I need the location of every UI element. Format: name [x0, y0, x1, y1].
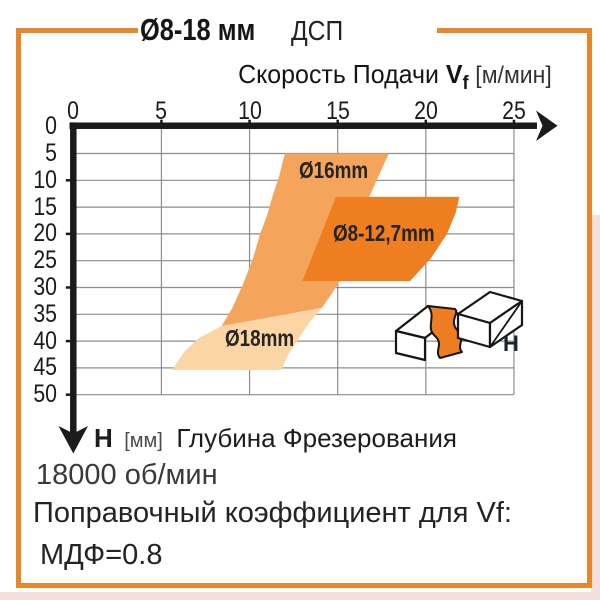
y-tick-label: 0 — [17, 112, 57, 141]
rpm-note: 18000 об/мин — [36, 459, 218, 492]
x-tick-label: 10 — [228, 97, 271, 126]
depth-h-label: H — [503, 331, 519, 357]
mdf-coefficient-value: МДФ=0.8 — [40, 539, 162, 572]
y-tick-label: 25 — [17, 246, 57, 275]
y-tick-label: 45 — [17, 353, 57, 382]
y-axis-title: H [мм] Глубина Фрезерования — [94, 423, 457, 454]
y-tick-label: 15 — [17, 193, 57, 222]
catalog-chart-card: Ø8-18 мм ДСП Скорость Подачи Vf[м/мин] Ø… — [0, 0, 600, 600]
band-label-d16: Ø16mm — [299, 157, 368, 184]
y-tick-label: 35 — [17, 300, 57, 329]
y-tick-label: 40 — [17, 327, 57, 356]
depth-symbol: H — [94, 423, 113, 453]
y-tick-label: 20 — [17, 219, 57, 248]
y-tick-label: 5 — [17, 139, 57, 168]
coefficient-note: Поправочный коэффициент для Vf: — [33, 497, 512, 530]
y-tick-label: 30 — [17, 273, 57, 302]
y-tick-label: 10 — [17, 166, 57, 195]
x-axis-arrow-icon — [536, 111, 558, 142]
x-tick-label: 15 — [316, 97, 359, 126]
y-axis-title-text: Глубина Фрезерования — [176, 423, 457, 453]
y-tick-label: 50 — [17, 380, 57, 409]
x-tick-label: 0 — [52, 97, 95, 126]
x-tick-label: 20 — [405, 97, 448, 126]
band-label-d8-127: Ø8-12,7mm — [333, 220, 435, 247]
y-axis-unit: [мм] — [124, 430, 163, 452]
x-tick-label: 25 — [493, 97, 536, 126]
band-label-d18: Ø18mm — [225, 325, 294, 352]
x-tick-label: 5 — [140, 97, 183, 126]
